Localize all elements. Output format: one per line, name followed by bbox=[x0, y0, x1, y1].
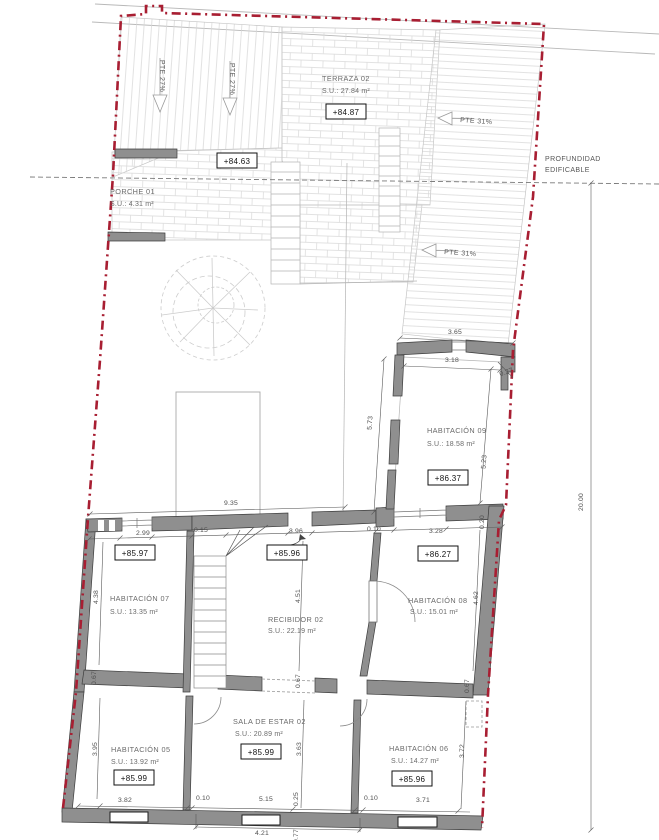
dim-421: 4.21 bbox=[255, 830, 269, 837]
wall-hab09-top-a bbox=[397, 340, 452, 355]
dim-328: 3.28 bbox=[429, 528, 443, 535]
winder-steps bbox=[226, 525, 268, 556]
wall-hab09-left-b bbox=[389, 420, 400, 464]
dim-372: 3.72 bbox=[459, 744, 466, 758]
room-hab08-area: S.U.: 15.01 m² bbox=[410, 609, 458, 616]
level-sala: +85.99 bbox=[248, 748, 275, 757]
closet-hab06 bbox=[466, 701, 482, 727]
pte27-label-2: PTE 27% bbox=[228, 63, 235, 95]
wall-rec-hab08-low bbox=[360, 622, 376, 676]
level-leader bbox=[288, 534, 306, 545]
wall-band2-right1 bbox=[315, 678, 337, 693]
wall-porche-bar2 bbox=[108, 232, 165, 241]
plan-drawing: PROFUNDIDAD EDIFICABLE PTE 27% PTE 27% P… bbox=[0, 0, 659, 840]
wall-hab09-left-c bbox=[386, 470, 396, 509]
window-2 bbox=[394, 507, 446, 519]
wall-band1-d bbox=[312, 510, 376, 526]
window-hab09 bbox=[452, 342, 466, 350]
dim-2000: 20.00 bbox=[578, 493, 585, 511]
room-hab06-area: S.U.: 14.27 m² bbox=[391, 758, 439, 765]
wall-sala-hab06 bbox=[351, 700, 361, 813]
band2-opening bbox=[262, 679, 315, 693]
level-porche: +84.63 bbox=[224, 157, 251, 166]
room-hab07-area: S.U.: 13.35 m² bbox=[110, 609, 158, 616]
wall-stair-left bbox=[183, 531, 194, 692]
room-hab08-name: HABITACIÓN 08 bbox=[408, 596, 467, 605]
level-hab06: +85.96 bbox=[399, 775, 426, 784]
room-hab09-name: HABITACIÓN 09 bbox=[427, 426, 486, 435]
pte27-label-1: PTE 27% bbox=[158, 60, 165, 92]
pool bbox=[176, 392, 260, 518]
room-recibidor-area: S.U.: 22.19 m² bbox=[268, 628, 316, 635]
profundidad-label-2: EDIFICABLE bbox=[545, 167, 590, 174]
dim-935: 9.35 bbox=[224, 500, 238, 507]
dim-067-left: 0.67 bbox=[91, 671, 98, 685]
dim-020: 0.20 bbox=[479, 515, 486, 529]
dim-451: 4.51 bbox=[295, 589, 302, 603]
wall-hab05-sala bbox=[183, 696, 193, 810]
room-terraza-name: TERRAZA 02 bbox=[322, 74, 370, 83]
level-hab05: +85.99 bbox=[121, 774, 148, 783]
room-recibidor-name: RECIBIDOR 02 bbox=[268, 615, 324, 624]
floor-plan: PROFUNDIDAD EDIFICABLE PTE 27% PTE 27% P… bbox=[0, 0, 659, 840]
dim-395: 3.95 bbox=[92, 742, 99, 756]
room-sala-name: SALA DE ESTAR 02 bbox=[233, 717, 306, 726]
dim-382: 3.82 bbox=[118, 797, 132, 804]
dim-067-right: 0.67 bbox=[464, 679, 471, 693]
dim-371: 3.71 bbox=[416, 797, 430, 804]
room-hab05-area: S.U.: 13.92 m² bbox=[111, 759, 159, 766]
dim-318: 3.18 bbox=[445, 357, 459, 364]
dim-438: 4.38 bbox=[93, 590, 100, 604]
dim-363: 3.63 bbox=[296, 742, 303, 756]
door-arc-hab05 bbox=[194, 697, 221, 724]
dim-299: 2.99 bbox=[136, 530, 150, 537]
window-1 bbox=[122, 517, 152, 529]
room-porche-area: S.U.: 4.31 m² bbox=[110, 201, 154, 208]
room-terraza-area: S.U.: 27.84 m² bbox=[322, 88, 370, 95]
dim-010-b2: 0.10 bbox=[364, 795, 378, 802]
dim-010-b1: 0.10 bbox=[196, 795, 210, 802]
dim-365: 3.65 bbox=[448, 329, 462, 336]
wall-rec-hab08-up bbox=[370, 533, 381, 581]
room-hab09-area: S.U.: 18.58 m² bbox=[427, 441, 475, 448]
dim-515: 5.15 bbox=[259, 796, 273, 803]
door-leaf-hab08 bbox=[369, 581, 377, 622]
room-hab06-name: HABITACIÓN 06 bbox=[389, 744, 448, 753]
level-hab08: +86.27 bbox=[425, 550, 452, 559]
room-hab07-name: HABITACIÓN 07 bbox=[110, 594, 169, 603]
wall-band2-right2 bbox=[367, 680, 473, 698]
level-hab09: +86.37 bbox=[435, 474, 462, 483]
dim-523: 5.23 bbox=[481, 455, 489, 470]
dim-015: 0.15 bbox=[194, 527, 208, 534]
room-porche-name: PORCHE 01 bbox=[110, 187, 155, 196]
dim-010-mid: 0.10 bbox=[367, 526, 381, 533]
wall-band1-pier-mid bbox=[376, 507, 394, 527]
dim-573: 5.73 bbox=[367, 416, 375, 431]
wall-hab09-left-a bbox=[393, 355, 404, 396]
profundidad-label-1: PROFUNDIDAD bbox=[545, 156, 601, 163]
dim-067-center: 0.67 bbox=[295, 674, 302, 688]
room-hab05-name: HABITACIÓN 05 bbox=[111, 745, 170, 754]
dim-025: 0.25 bbox=[293, 792, 300, 806]
tree bbox=[161, 256, 265, 360]
wall-porche-bar1 bbox=[115, 149, 177, 158]
level-terraza: +84.87 bbox=[333, 108, 360, 117]
interior-stair bbox=[194, 525, 268, 688]
level-recibidor: +85.96 bbox=[274, 549, 301, 558]
dim-396: 3.96 bbox=[289, 528, 303, 535]
dim-077: 0.77 bbox=[293, 829, 300, 840]
room-sala-area: S.U.: 20.89 m² bbox=[235, 731, 283, 738]
level-hab07: +85.97 bbox=[122, 549, 149, 558]
band1-windows bbox=[122, 342, 466, 529]
wall-band1-b bbox=[152, 516, 192, 531]
dim-462: 4.62 bbox=[473, 591, 480, 605]
mid-paving bbox=[300, 205, 422, 283]
